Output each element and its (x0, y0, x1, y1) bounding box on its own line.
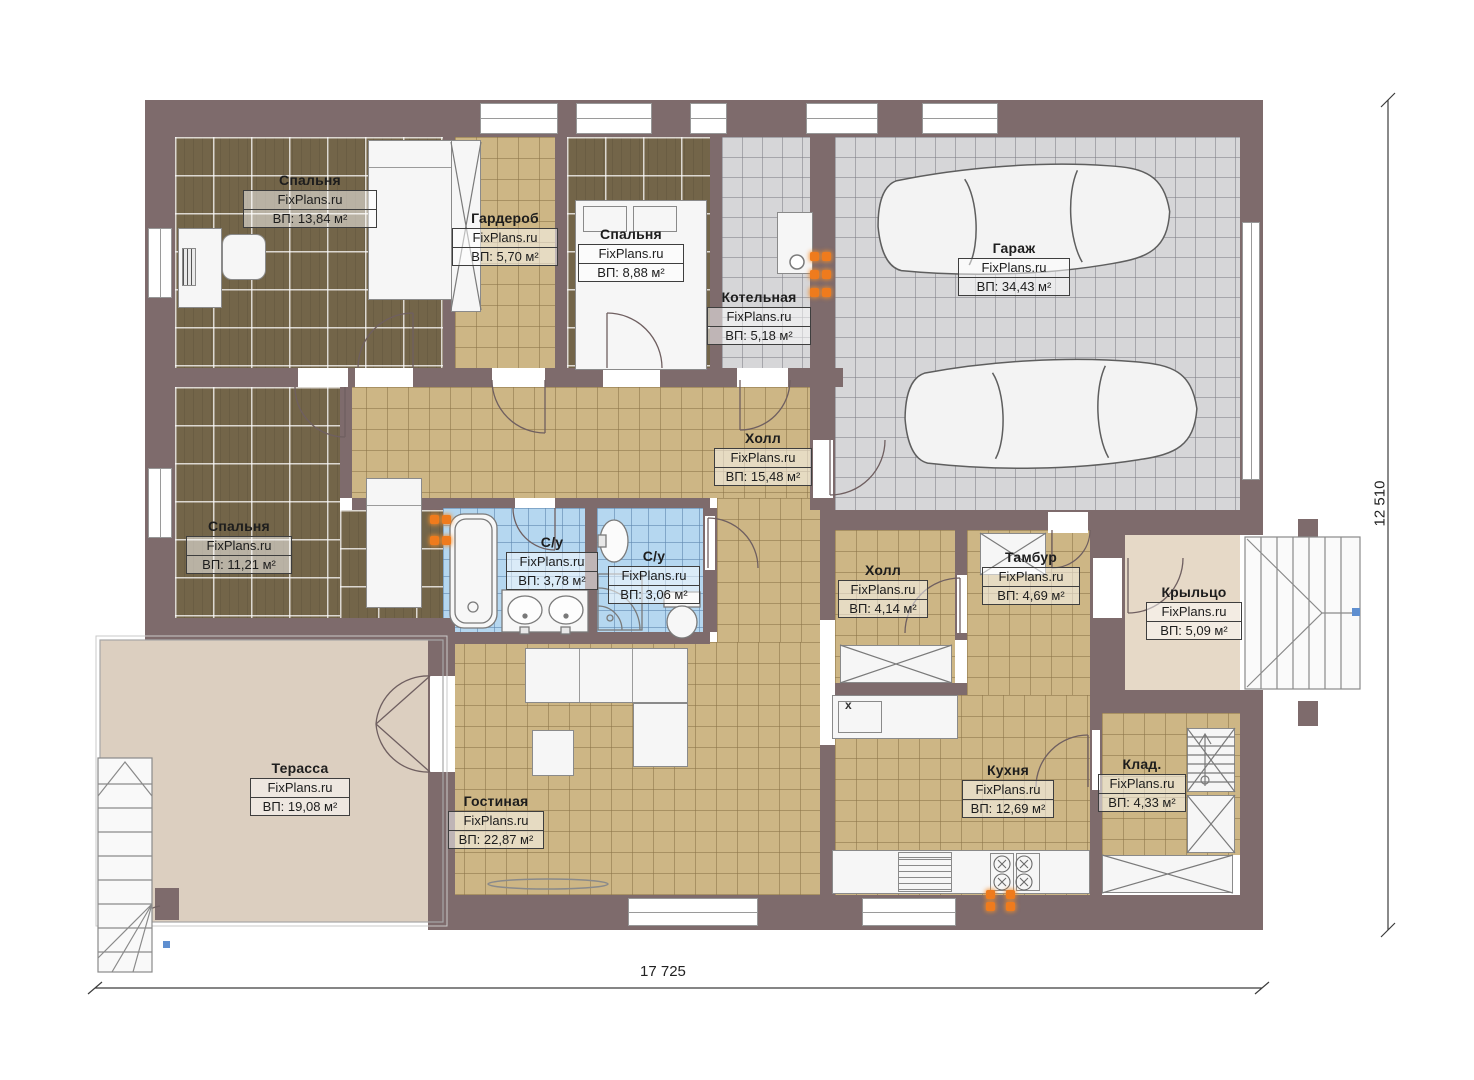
dimension-height: 12 510 (1372, 464, 1389, 544)
room-area: ВП: 4,69 м² (983, 587, 1079, 605)
room-name: Спальня (578, 226, 684, 242)
room-area: ВП: 11,21 м² (187, 556, 291, 574)
watermark-text: FixPlans.ru (983, 568, 1079, 587)
washing-machine (898, 852, 952, 892)
orange-dot-icon (430, 536, 439, 545)
room-name: Котельная (707, 289, 811, 305)
garage-floor (835, 137, 1240, 510)
porch-post-bottom (1298, 701, 1318, 726)
orange-dot-icon (822, 288, 831, 297)
door-gap-bath-2 (705, 516, 715, 570)
watermark-text: FixPlans.ru (449, 812, 543, 831)
door-gap-hall-garage (813, 440, 833, 498)
wall-terrace-top (145, 618, 455, 640)
room-label-storage: Клад. FixPlans.ruВП: 4,33 м² (1098, 756, 1186, 812)
room-area: ВП: 4,14 м² (839, 600, 927, 618)
watermark-text: FixPlans.ru (959, 259, 1069, 278)
heating-indicator (986, 890, 995, 911)
room-area: ВП: 34,43 м² (959, 278, 1069, 296)
orange-dot-icon (822, 270, 831, 279)
floor-plan-canvas: x Спальня FixPlans.ruВП: 13,84 м² Гардер… (0, 0, 1474, 1080)
storage-stairs (1187, 728, 1235, 792)
sofa-cushion-divider (632, 649, 633, 702)
window-top-2 (576, 103, 652, 134)
heating-indicator (1006, 890, 1015, 911)
room-label-living: Гостиная FixPlans.ruВП: 22,87 м² (448, 793, 544, 849)
room-area: ВП: 5,70 м² (453, 248, 557, 266)
room-label-hall-main: Холл FixPlans.ruВП: 15,48 м² (714, 430, 812, 486)
porch-post-top (1298, 519, 1318, 544)
window-top-4 (806, 103, 878, 134)
hall-passage-floor (717, 498, 820, 642)
boiler-unit (777, 212, 813, 274)
orange-dot-icon (1006, 890, 1015, 899)
wall-baths-top (443, 498, 710, 508)
stove-panel-1 (990, 853, 1014, 891)
desk-chair (222, 234, 266, 280)
room-label-wardrobe: Гардероб FixPlans.ruВП: 5,70 м² (452, 210, 558, 266)
orange-dot-icon (430, 515, 439, 524)
room-area: ВП: 12,69 м² (963, 800, 1053, 818)
wall-bed3-hall-v (340, 387, 352, 498)
bed-3 (366, 478, 422, 608)
door-gap-bedroom-1 (355, 368, 413, 387)
room-label-garage: Гараж FixPlans.ruВП: 34,43 м² (958, 240, 1070, 296)
wall-porch-bottom (1090, 690, 1263, 713)
heating-indicator (430, 536, 451, 545)
window-top-3 (690, 103, 727, 134)
wall-porch-top (1090, 510, 1263, 535)
heating-indicator (430, 515, 451, 524)
room-area: ВП: 22,87 м² (449, 831, 543, 849)
watermark-text: FixPlans.ru (708, 308, 810, 327)
door-gap-terrace (430, 676, 455, 772)
watermark-text: FixPlans.ru (839, 581, 927, 600)
wall-living-kitchen-a (820, 510, 835, 620)
watermark-text: FixPlans.ru (244, 191, 376, 210)
room-area: ВП: 4,33 м² (1099, 794, 1185, 812)
coffee-table (532, 730, 574, 776)
room-label-boiler: Котельная FixPlans.ruВП: 5,18 м² (707, 289, 811, 345)
garage-door-right (1242, 222, 1260, 480)
orange-dot-icon (810, 270, 819, 279)
room-name: Клад. (1098, 756, 1186, 772)
window-top-1 (480, 103, 558, 134)
room-area: ВП: 8,88 м² (579, 264, 683, 282)
room-name: Кухня (962, 762, 1054, 778)
door-gap-bedroom-2 (603, 368, 660, 387)
room-label-bedroom-3: Спальня FixPlans.ruВП: 11,21 м² (186, 518, 292, 574)
bedroom-3-floor (175, 387, 340, 620)
window-bottom-1 (628, 898, 758, 926)
watermark-text: FixPlans.ru (715, 449, 811, 468)
room-name: Холл (714, 430, 812, 446)
room-area: ВП: 15,48 м² (715, 468, 811, 486)
orange-dot-icon (1006, 902, 1015, 911)
heating-indicator (810, 252, 831, 261)
wall-bottom (428, 895, 1262, 930)
window-top-5 (922, 103, 998, 134)
wall-right-lower (1240, 690, 1263, 930)
door-gap-bath-1 (515, 498, 555, 508)
watermark-text: FixPlans.ru (507, 553, 597, 572)
heating-indicator (810, 288, 831, 297)
door-gap-hall2-tambur (957, 575, 967, 633)
room-label-porch: Крыльцо FixPlans.ruВП: 5,09 м² (1146, 584, 1242, 640)
heating-indicator (810, 270, 831, 279)
room-name: Спальня (186, 518, 292, 534)
orange-dot-icon (810, 288, 819, 297)
wall-hall2-south (835, 683, 967, 695)
terrace-post (155, 888, 179, 920)
door-gap-bedroom-3 (298, 368, 348, 387)
room-area: ВП: 5,18 м² (708, 327, 810, 345)
orange-dot-icon (986, 890, 995, 899)
marker-dot-icon (1352, 608, 1360, 616)
room-name: Крыльцо (1146, 584, 1242, 600)
room-area: ВП: 3,06 м² (609, 586, 699, 604)
watermark-text: FixPlans.ru (963, 781, 1053, 800)
room-area: ВП: 19,08 м² (251, 798, 349, 816)
hall-2-closet (840, 645, 952, 683)
dimension-width: 17 725 (640, 963, 686, 980)
room-name: Спальня (243, 172, 377, 188)
watermark-text: FixPlans.ru (453, 229, 557, 248)
room-name: Холл (838, 562, 928, 578)
room-name: С/у (608, 548, 700, 564)
orange-dot-icon (810, 252, 819, 261)
window-left-1 (148, 228, 172, 298)
watermark-text: FixPlans.ru (187, 537, 291, 556)
storage-shelf-2 (1102, 855, 1233, 893)
room-label-bath-1: С/у FixPlans.ruВП: 3,78 м² (506, 534, 598, 590)
kitchen-sink-mark: x (845, 698, 852, 712)
bed-3-pillow (367, 479, 421, 506)
orange-dot-icon (822, 252, 831, 261)
bed-1 (368, 140, 455, 300)
room-name: Гараж (958, 240, 1070, 256)
bed-1-pillow (369, 141, 454, 168)
room-label-bedroom-1: Спальня FixPlans.ruВП: 13,84 м² (243, 172, 377, 228)
room-label-tambur: Тамбур FixPlans.ruВП: 4,69 м² (982, 549, 1080, 605)
marker-dot-icon (163, 941, 170, 948)
door-gap-tambur-garage (1048, 512, 1088, 533)
room-label-kitchen: Кухня FixPlans.ruВП: 12,69 м² (962, 762, 1054, 818)
room-label-bedroom-2: Спальня FixPlans.ruВП: 8,88 м² (578, 226, 684, 282)
orange-dot-icon (986, 902, 995, 911)
watermark-text: FixPlans.ru (1099, 775, 1185, 794)
room-label-hall-2: Холл FixPlans.ruВП: 4,14 м² (838, 562, 928, 618)
storage-shelf-1 (1187, 795, 1235, 853)
room-name: С/у (506, 534, 598, 550)
room-name: Гардероб (452, 210, 558, 226)
sofa-cushion-divider (579, 649, 580, 702)
orange-dot-icon (442, 536, 451, 545)
room-area: ВП: 5,09 м² (1147, 622, 1241, 640)
window-bottom-2 (862, 898, 956, 926)
window-left-2 (148, 468, 172, 538)
room-name: Терасса (250, 760, 350, 776)
porch-steps (1245, 537, 1360, 689)
wall-baths-bottom (443, 632, 710, 644)
room-name: Тамбур (982, 549, 1080, 565)
door-gap-wardrobe (492, 368, 545, 387)
orange-dot-icon (442, 515, 451, 524)
room-area: ВП: 3,78 м² (507, 572, 597, 590)
watermark-text: FixPlans.ru (1147, 603, 1241, 622)
door-gap-front (1093, 558, 1122, 618)
stove-panel-2 (1016, 853, 1040, 891)
watermark-text: FixPlans.ru (609, 567, 699, 586)
sofa-chaise (633, 703, 688, 767)
desk-monitor (182, 248, 196, 286)
room-label-terrace: Терасса FixPlans.ruВП: 19,08 м² (250, 760, 350, 816)
room-name: Гостиная (448, 793, 544, 809)
room-label-bath-2: С/у FixPlans.ruВП: 3,06 м² (608, 548, 700, 604)
watermark-text: FixPlans.ru (579, 245, 683, 264)
sofa-horizontal (525, 648, 688, 703)
kitchen-counter-bottom (832, 850, 1090, 894)
room-area: ВП: 13,84 м² (244, 210, 376, 228)
door-gap-boiler (737, 368, 788, 387)
watermark-text: FixPlans.ru (251, 779, 349, 798)
